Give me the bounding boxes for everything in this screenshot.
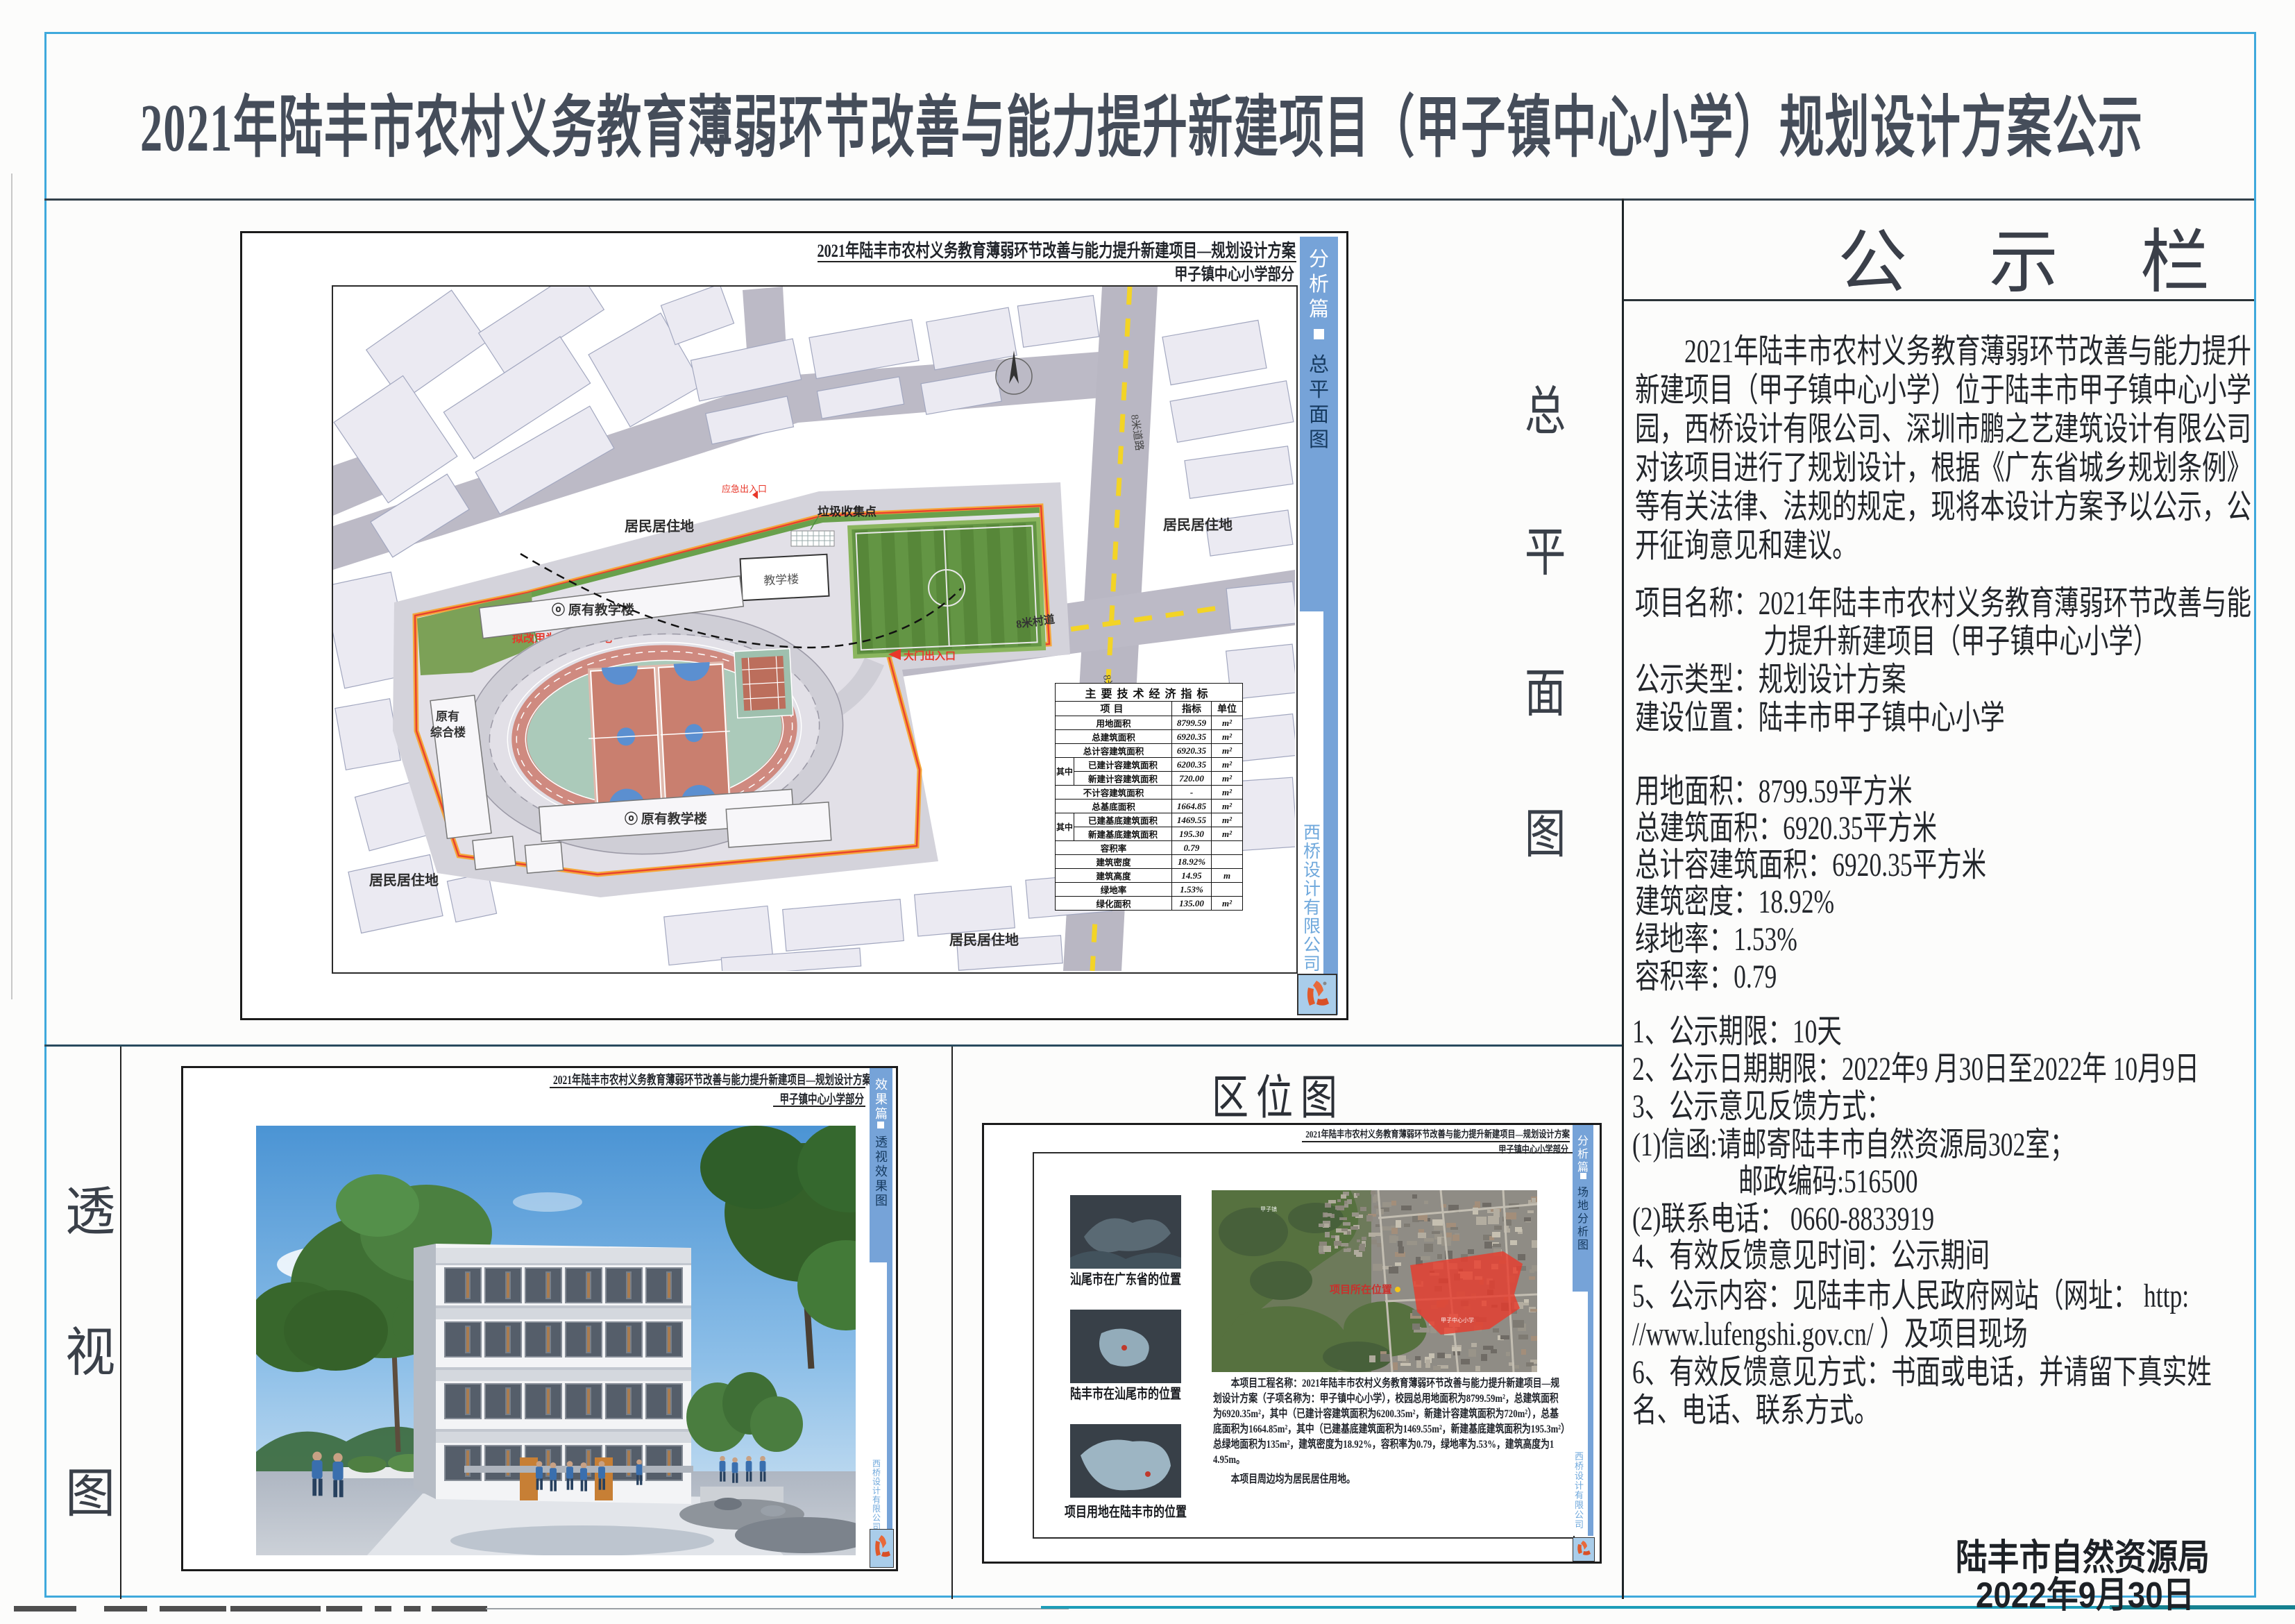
svg-text:大门出入口: 大门出入口 xyxy=(904,650,956,662)
svg-text:教学楼: 教学楼 xyxy=(763,573,799,588)
svg-text:应急出入口: 应急出入口 xyxy=(722,484,767,494)
svg-text:ⓞ 原有教学楼: ⓞ 原有教学楼 xyxy=(552,602,634,618)
svg-text:甲子镇: 甲子镇 xyxy=(1260,1206,1277,1212)
svg-text:居民居住地: 居民居住地 xyxy=(369,872,439,888)
svg-text:居民居住地: 居民居住地 xyxy=(625,518,694,534)
svg-text:甲子中心小学: 甲子中心小学 xyxy=(1441,1317,1474,1323)
svg-text:垃圾收集点: 垃圾收集点 xyxy=(818,505,876,518)
svg-text:项目所在位置: 项目所在位置 xyxy=(1330,1283,1392,1296)
svg-text:原有: 原有 xyxy=(436,709,459,723)
svg-text:综合楼: 综合楼 xyxy=(430,725,466,739)
svg-text:居民居住地: 居民居住地 xyxy=(949,931,1019,948)
svg-text:居民居住地: 居民居住地 xyxy=(1163,516,1233,533)
svg-text:ⓞ 原有教学楼: ⓞ 原有教学楼 xyxy=(625,811,707,827)
